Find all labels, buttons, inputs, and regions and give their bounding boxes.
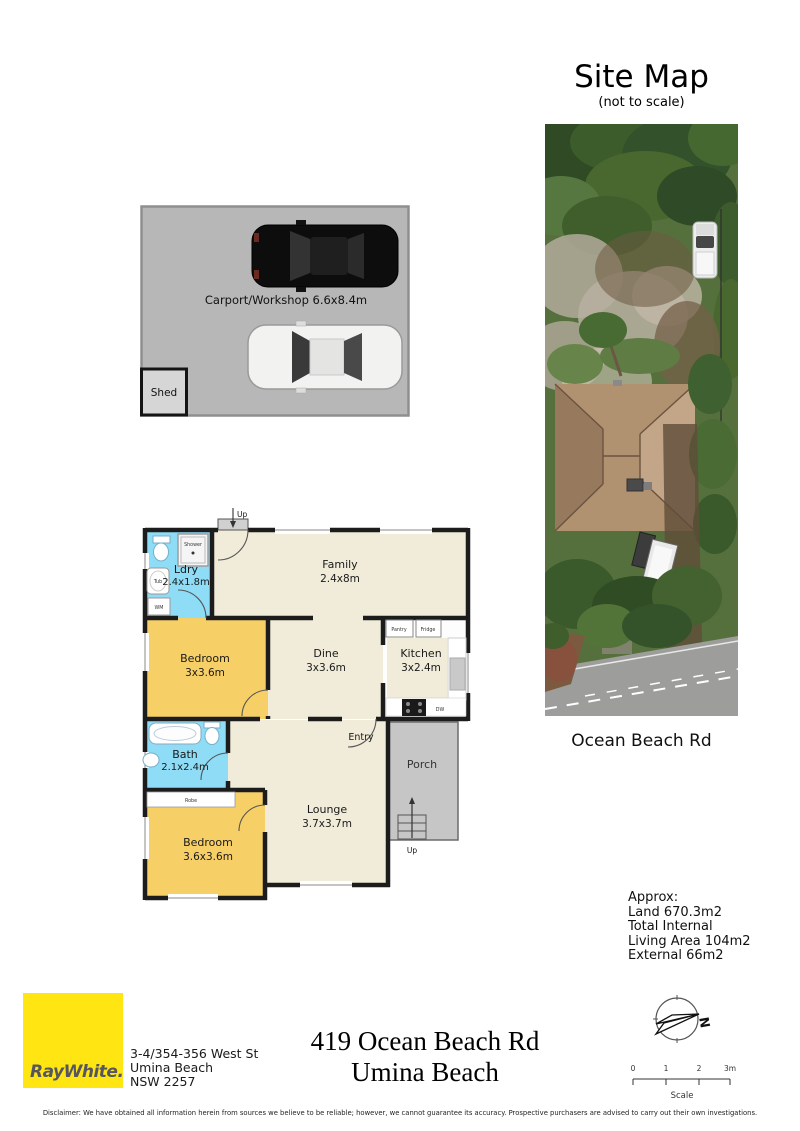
bedroom1-name: Bedroom [180,652,230,665]
area-summary: Approx: Land 670.3m2 Total Internal Livi… [628,891,751,964]
property-title-line2: Umina Beach [175,1057,675,1088]
area-land: Land 670.3m2 [628,906,751,921]
raywhite-logo-text: RayWhite. [30,1062,123,1082]
dw-label: DW [436,707,445,713]
shed: Shed [142,369,187,415]
raywhite-logo: RayWhite. [23,993,123,1088]
property-title: 419 Ocean Beach Rd Umina Beach [175,1026,675,1088]
white-car [248,321,402,393]
bath-name: Bath [172,748,198,761]
pantry-label: Pantry [391,627,407,633]
tub-label: Tub [153,579,162,585]
scale-tick-3: 3m [724,1064,736,1073]
lounge-dims: 3.7x3.7m [302,818,352,830]
bedroom1-dims: 3x3.6m [185,667,225,679]
bath-dims: 2.1x2.4m [161,762,208,773]
site-map-title: Site Map [545,60,738,94]
area-external: External 66m2 [628,949,751,964]
lounge-name: Lounge [307,803,348,816]
fridge-label: Fridge [421,627,436,633]
scale-label: Scale [671,1091,694,1101]
shed-label: Shed [151,387,177,399]
dine-name: Dine [313,647,338,660]
porch-up-label: Up [407,846,417,855]
dine-dims: 3x3.6m [306,662,346,674]
entry-label: Entry [348,732,374,743]
wm-label: WM [155,605,164,611]
shower-label: Shower [184,542,202,548]
scale-tick-0: 0 [631,1064,636,1073]
area-living: Living Area 104m2 [628,935,751,950]
family-name: Family [322,558,358,571]
bedroom2-name: Bedroom [183,836,233,849]
carport-diagram: Carport/Workshop 6.6x8.4m Shed [140,205,410,417]
scale-bar: 0 1 2 3m Scale [627,1062,739,1104]
compass-icon: N [632,986,724,1064]
robe-label: Robe [185,798,197,804]
porch-label: Porch [407,758,437,771]
road-label: Ocean Beach Rd [545,731,738,751]
rear-up-label: Up [237,510,247,519]
white-ute [693,222,717,278]
area-heading: Approx: [628,891,751,906]
family-dims: 2.4x8m [320,573,360,585]
kitchen-name: Kitchen [400,647,441,660]
carport-label: Carport/Workshop 6.6x8.4m [205,293,367,307]
disclaimer-text: Disclaimer: We have obtained all informa… [0,1109,800,1117]
floorplan-sheet: Site Map (not to scale) [0,0,800,1131]
floor-plan: Up Up [140,505,475,905]
property-title-line1: 419 Ocean Beach Rd [175,1026,675,1057]
area-total-internal: Total Internal [628,920,751,935]
ldry-name: Ldry [174,563,199,576]
ldry-dims: 2.4x1.8m [162,577,209,588]
site-map-header: Site Map (not to scale) [545,60,738,110]
bedroom2-dims: 3.6x3.6m [183,851,233,863]
compass-north-label: N [695,1016,712,1029]
scale-tick-1: 1 [664,1064,669,1073]
aerial-photo [545,124,738,716]
site-map-subtitle: (not to scale) [545,95,738,110]
scale-tick-2: 2 [697,1064,702,1073]
black-car [252,220,398,292]
kitchen-dims: 3x2.4m [401,662,441,674]
